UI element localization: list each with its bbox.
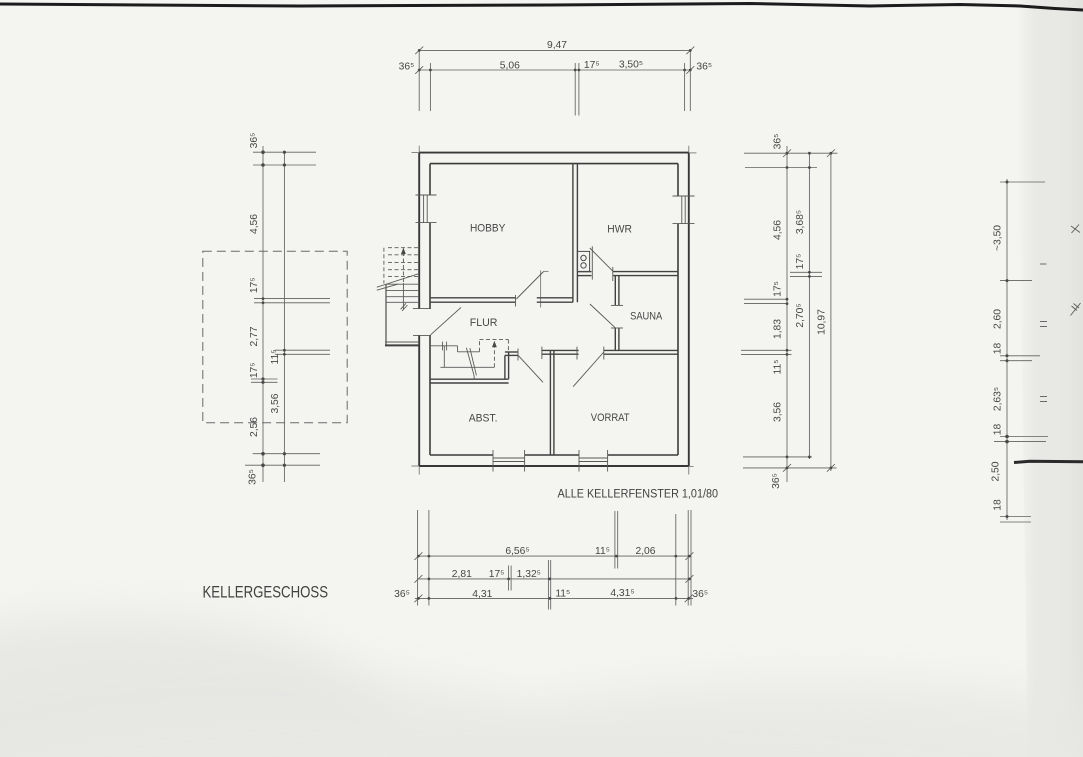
svg-text:36⁵: 36⁵ [394,589,410,600]
svg-text:ABST.: ABST. [469,413,498,425]
svg-text:2,70⁵: 2,70⁵ [795,303,806,327]
svg-text:KELLERGESCHOSS: KELLERGESCHOSS [203,583,329,602]
svg-text:9,47: 9,47 [547,40,567,51]
svg-text:18: 18 [993,343,1004,355]
svg-text:17⁵: 17⁵ [489,569,505,580]
svg-text:17⁵: 17⁵ [584,60,600,71]
svg-text:5,06: 5,06 [500,60,520,71]
svg-text:FLUR: FLUR [470,317,498,329]
svg-text:11⁵: 11⁵ [773,360,784,375]
svg-text:SAUNA: SAUNA [630,310,663,322]
svg-text:4,56: 4,56 [249,214,260,234]
svg-text:3,50⁵: 3,50⁵ [619,60,643,71]
svg-text:11⁵: 11⁵ [555,588,570,599]
svg-text:HWR: HWR [607,223,632,235]
svg-text:2,60: 2,60 [993,309,1004,329]
svg-text:3,56: 3,56 [270,393,281,413]
svg-text:ALLE KELLERFENSTER 1,01/80: ALLE KELLERFENSTER 1,01/80 [558,487,719,501]
svg-text:1,32⁵: 1,32⁵ [517,569,541,580]
svg-text:36⁵: 36⁵ [696,61,712,72]
svg-text:2,77: 2,77 [249,326,260,346]
svg-text:2,06: 2,06 [635,546,655,557]
svg-text:36⁵: 36⁵ [248,469,259,485]
svg-text:HOBBY: HOBBY [470,223,506,235]
svg-text:4,31⁵: 4,31⁵ [610,588,634,599]
svg-text:17⁵: 17⁵ [773,281,784,297]
svg-text:18: 18 [993,499,1004,511]
svg-text:2,56: 2,56 [249,417,260,437]
svg-text:11⁵: 11⁵ [595,546,610,557]
svg-text:36⁵: 36⁵ [773,134,784,150]
svg-text:VORRAT: VORRAT [591,412,630,424]
svg-text:17⁵: 17⁵ [795,254,806,270]
svg-text:6,56⁵: 6,56⁵ [505,546,529,557]
svg-text:1,83: 1,83 [773,319,784,339]
svg-text:18: 18 [993,424,1004,436]
svg-text:~3,50: ~3,50 [993,225,1004,251]
svg-text:3,56: 3,56 [773,402,784,422]
svg-text:36⁵: 36⁵ [399,61,415,72]
svg-text:17⁵: 17⁵ [249,277,260,293]
svg-text:2,63⁵: 2,63⁵ [993,387,1004,411]
svg-text:36⁵: 36⁵ [249,133,260,149]
svg-text:36⁵: 36⁵ [771,473,782,489]
svg-text:11⁵: 11⁵ [270,350,281,365]
svg-text:4,31: 4,31 [472,589,492,600]
svg-text:17⁵: 17⁵ [249,362,260,378]
svg-text:10,97: 10,97 [816,309,827,335]
svg-text:2,50: 2,50 [991,461,1002,481]
svg-text:2,81: 2,81 [452,569,472,580]
svg-text:3,68⁵: 3,68⁵ [795,210,806,234]
svg-text:36⁵: 36⁵ [692,589,708,600]
svg-text:4,56: 4,56 [773,220,784,240]
